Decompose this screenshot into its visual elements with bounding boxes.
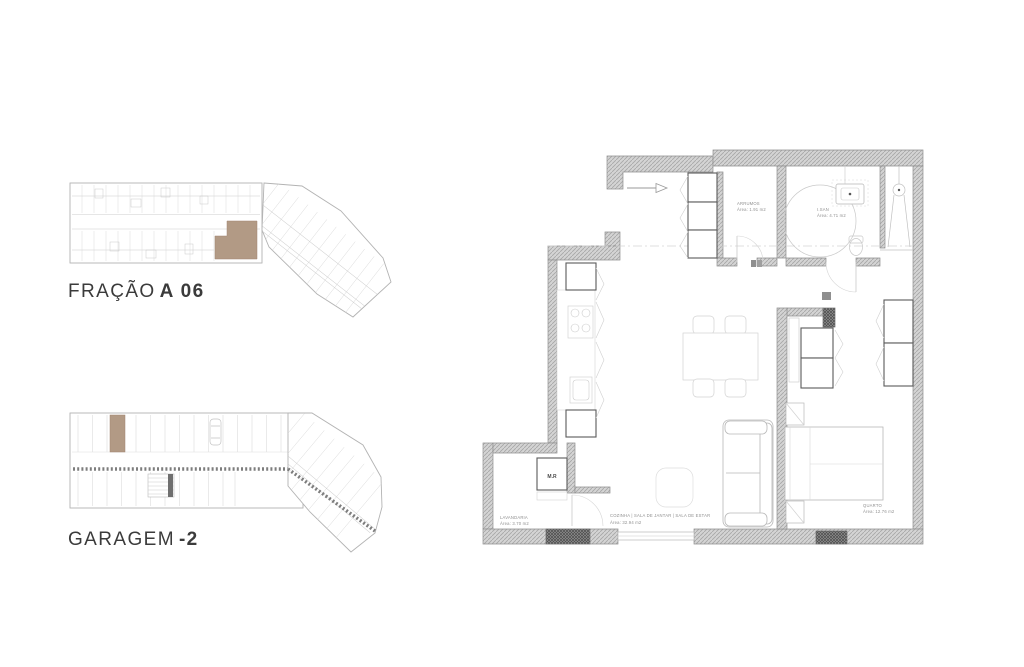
- vent-grille-left: [546, 529, 590, 544]
- kitchen-counter-front: [596, 268, 604, 418]
- vent-grille-right: [816, 531, 847, 544]
- garage-caption: GARAGEM-2: [68, 529, 199, 551]
- garage-caption-prefix: GARAGEM: [68, 529, 175, 550]
- living-room-window: [618, 532, 694, 540]
- nightstand: [786, 403, 804, 425]
- structural-column: [823, 308, 835, 327]
- building-wing-outline: [262, 183, 391, 317]
- sofa: [723, 420, 773, 527]
- building-overview-plan: [70, 169, 396, 360]
- garage-stairs: [148, 474, 174, 497]
- room-area-arrumos: Área: 1.91 m2: [737, 207, 766, 212]
- fraction-caption: FRAÇÃOA 06: [68, 281, 205, 303]
- kitchen-cabinet-bottom: [566, 410, 596, 437]
- storage-room-door: [737, 236, 763, 267]
- bathroom-door: [822, 262, 856, 300]
- pouf: [656, 468, 693, 507]
- floor-plan-sheet: ARRUMOS Área: 1.91 m2 I.SAN Área: 4.71 m…: [0, 0, 1024, 667]
- washing-machine-label: M.R: [547, 474, 557, 480]
- room-area-isan: Área: 4.71 m2: [817, 213, 846, 218]
- hall-closets: [680, 173, 717, 258]
- room-area-cozinha-sala: Área: 32.94 m2: [610, 520, 642, 525]
- garage-stairs-wall: [168, 474, 173, 497]
- room-label-quarto: QUARTO: [863, 503, 883, 508]
- room-label-lavandaria: LAVANDARIA: [500, 515, 528, 520]
- dining-table: [683, 333, 758, 380]
- room-area-lavandaria: Área: 3.70 m2: [500, 521, 529, 526]
- garage-caption-value: -2: [179, 529, 199, 550]
- highlighted-parking-stall: [110, 415, 125, 452]
- room-area-quarto: Área: 12.76 m2: [863, 509, 895, 514]
- nightstand: [786, 501, 804, 523]
- room-label-isan: I.SAN: [817, 207, 829, 212]
- chair: [693, 379, 714, 397]
- hall-cabinet: [789, 318, 799, 382]
- fraction-caption-prefix: FRAÇÃO: [68, 281, 156, 302]
- fraction-caption-value: A 06: [160, 281, 205, 302]
- chair: [725, 379, 746, 397]
- laundry-door: [572, 495, 603, 526]
- bedroom-closet-left: [801, 328, 833, 388]
- toilet: [850, 239, 863, 256]
- chair: [693, 316, 714, 334]
- bed: [785, 427, 883, 500]
- kitchen: [557, 263, 604, 437]
- chair: [725, 316, 746, 334]
- kitchen-cabinet-top: [566, 263, 596, 290]
- room-label-arrumos: ARRUMOS: [737, 201, 760, 206]
- plans-canvas: ARRUMOS Área: 1.91 m2 I.SAN Área: 4.71 m…: [0, 0, 1024, 667]
- entry-arrow-icon: [627, 184, 667, 193]
- room-label-cozinha-sala: COZINHA | SALA DE JANTAR | SALA DE ESTAR: [610, 513, 710, 518]
- dining-set: [683, 316, 758, 397]
- bedroom-closet-right: [884, 300, 913, 386]
- apartment-floor-plan: ARRUMOS Área: 1.91 m2 I.SAN Área: 4.71 m…: [483, 150, 923, 544]
- bedroom: [785, 300, 913, 523]
